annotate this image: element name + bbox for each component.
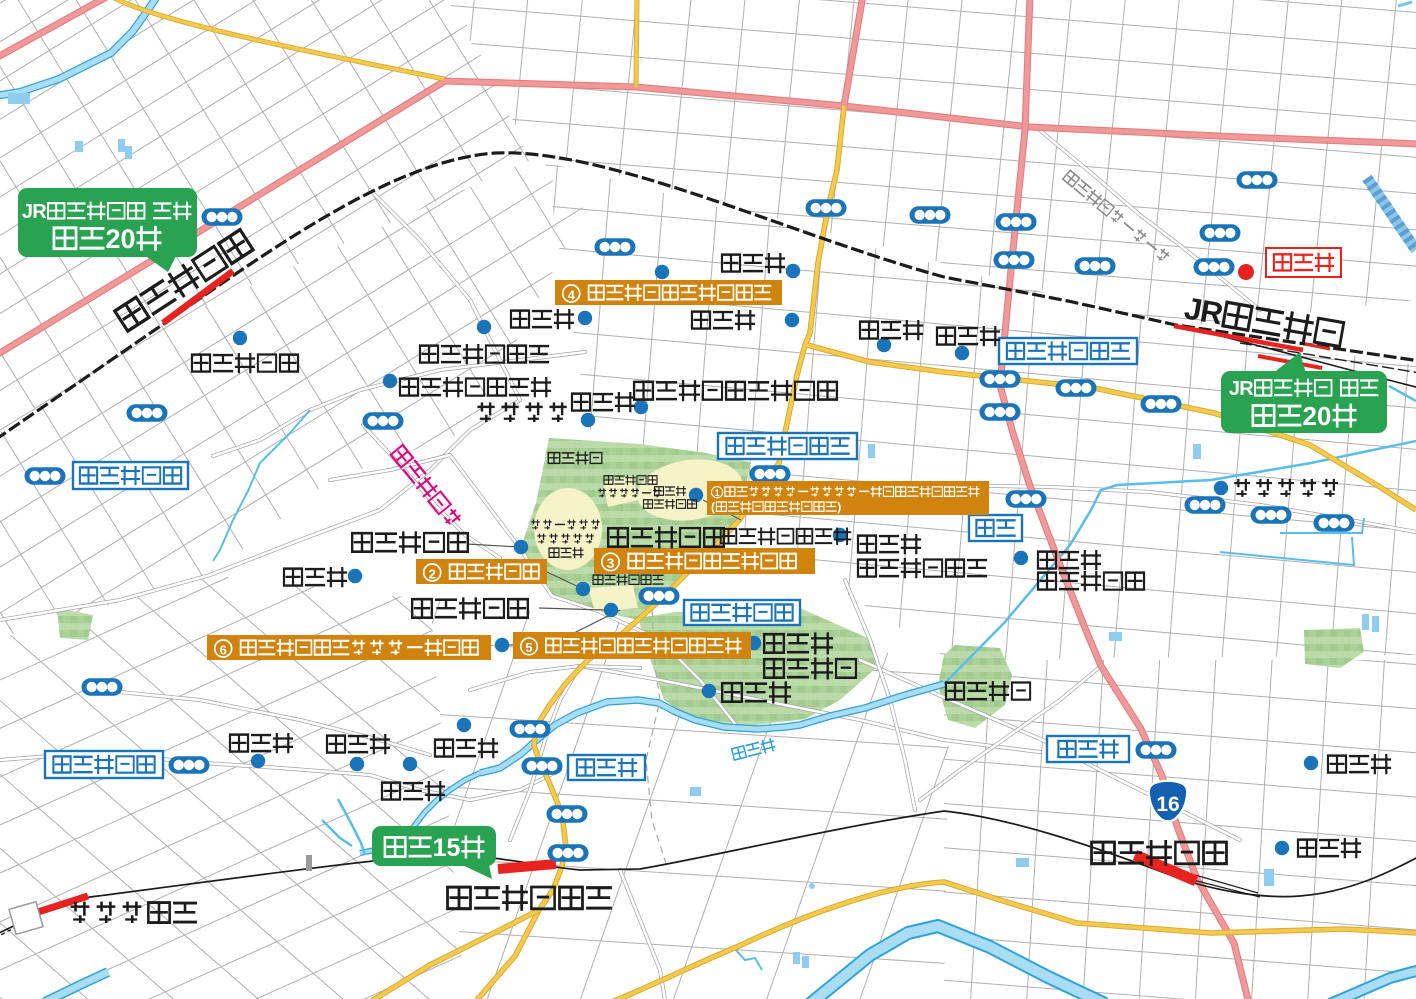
svg-text:5: 5 xyxy=(447,834,461,862)
svg-text:R: R xyxy=(32,201,47,223)
svg-text:0: 0 xyxy=(1317,401,1331,431)
svg-text:5: 5 xyxy=(525,640,532,655)
svg-text:(: ( xyxy=(711,500,715,514)
svg-text:16: 16 xyxy=(1156,793,1179,816)
svg-text:1: 1 xyxy=(433,834,447,862)
svg-text:R: R xyxy=(1239,378,1254,400)
svg-text:3: 3 xyxy=(607,555,615,571)
svg-text:2: 2 xyxy=(1303,401,1317,431)
svg-text:2: 2 xyxy=(429,566,436,581)
svg-text:): ) xyxy=(837,500,841,514)
svg-text:1: 1 xyxy=(715,488,720,498)
svg-text:2: 2 xyxy=(106,224,121,254)
svg-text:0: 0 xyxy=(121,224,136,254)
svg-text:4: 4 xyxy=(568,287,576,302)
svg-text:6: 6 xyxy=(220,642,227,657)
